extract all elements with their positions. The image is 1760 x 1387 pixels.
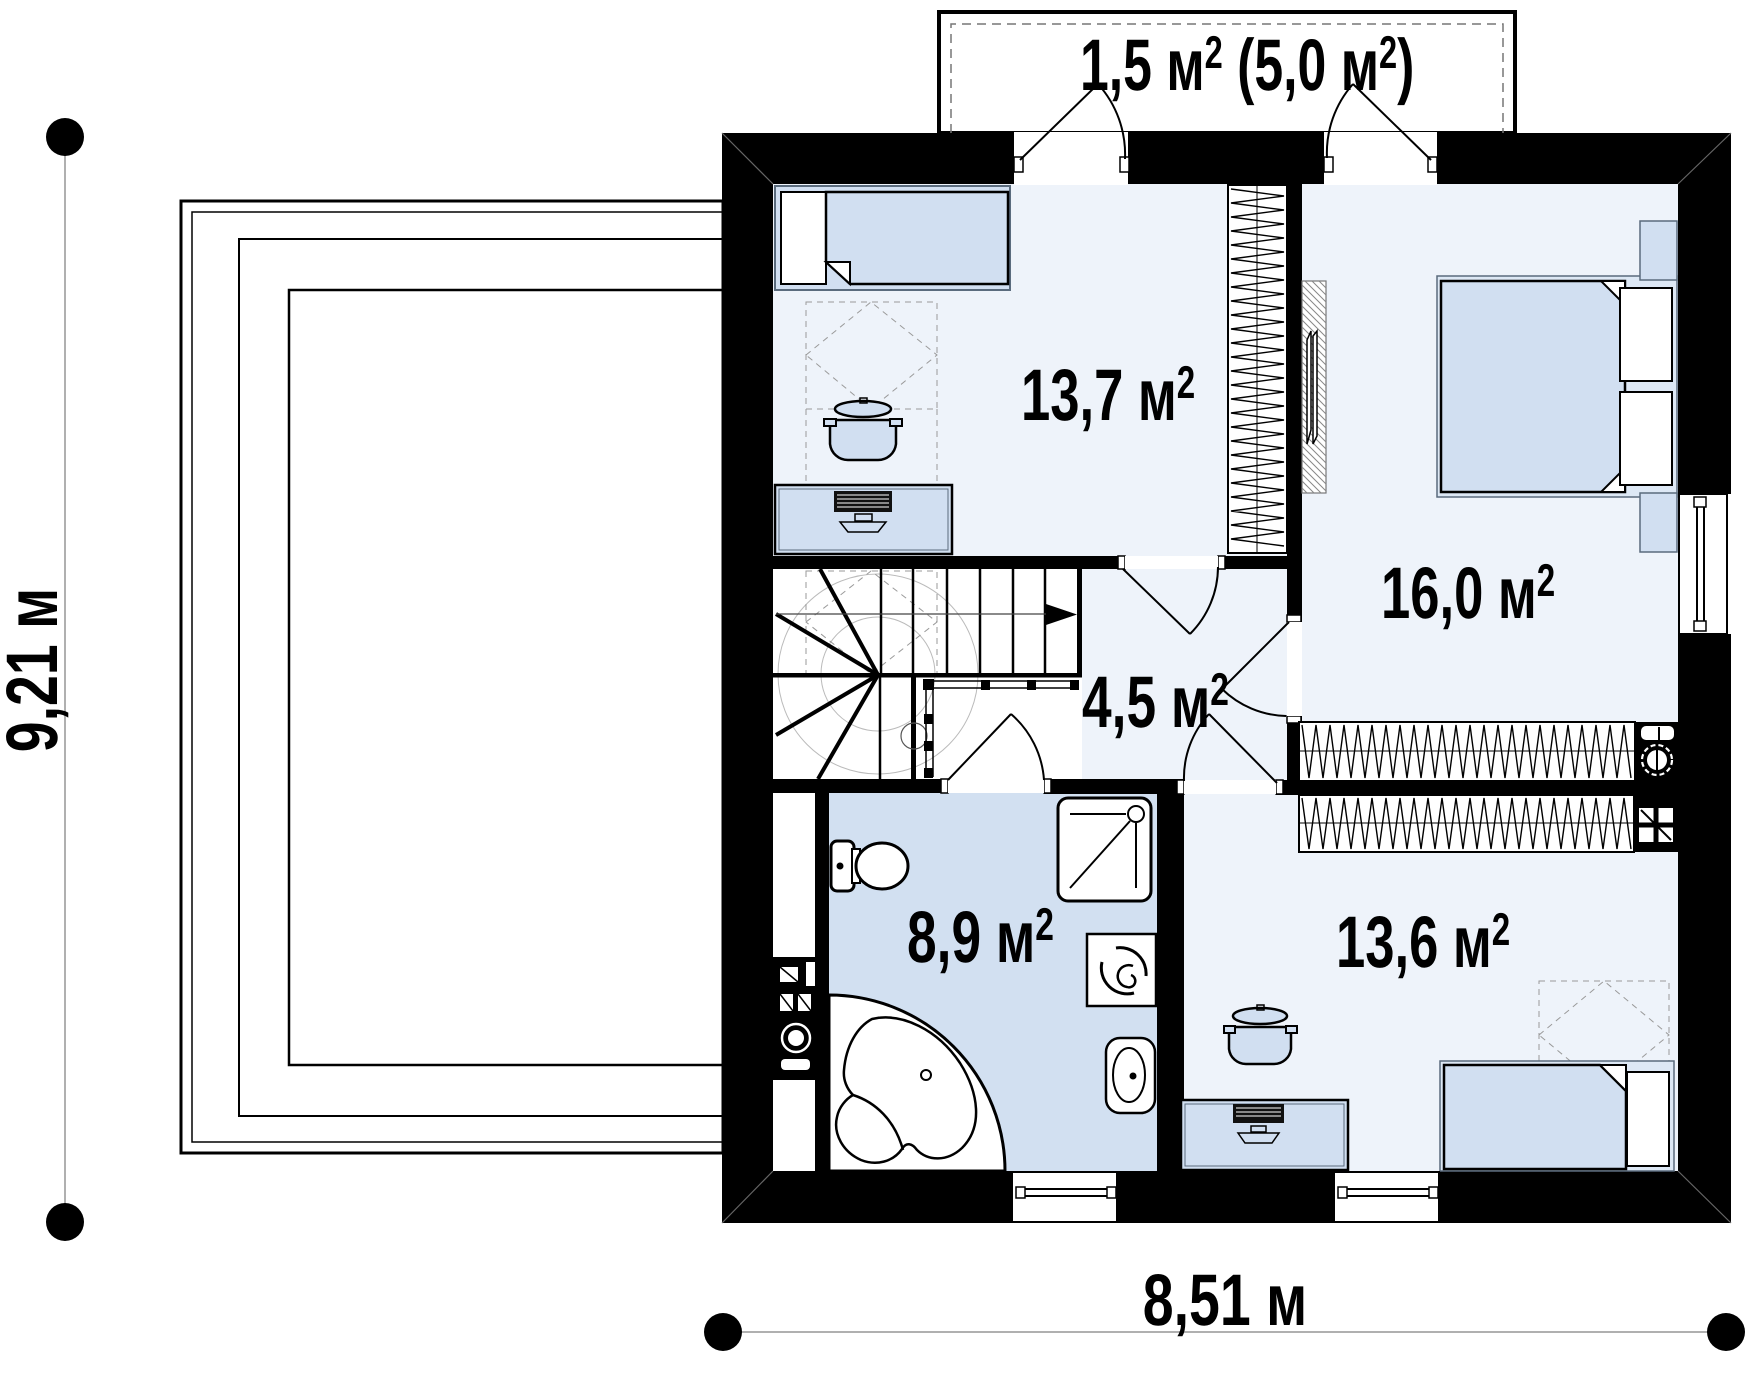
svg-text:9,21 м: 9,21 м <box>0 588 73 752</box>
svg-text:8,51 м: 8,51 м <box>1143 1260 1307 1341</box>
svg-text:13,7 м2: 13,7 м2 <box>1021 355 1195 436</box>
svg-text:8,9 м2: 8,9 м2 <box>907 897 1054 978</box>
svg-text:16,0 м2: 16,0 м2 <box>1381 553 1555 634</box>
svg-text:4,5 м2: 4,5 м2 <box>1082 662 1229 743</box>
svg-text:13,6 м2: 13,6 м2 <box>1336 902 1510 983</box>
